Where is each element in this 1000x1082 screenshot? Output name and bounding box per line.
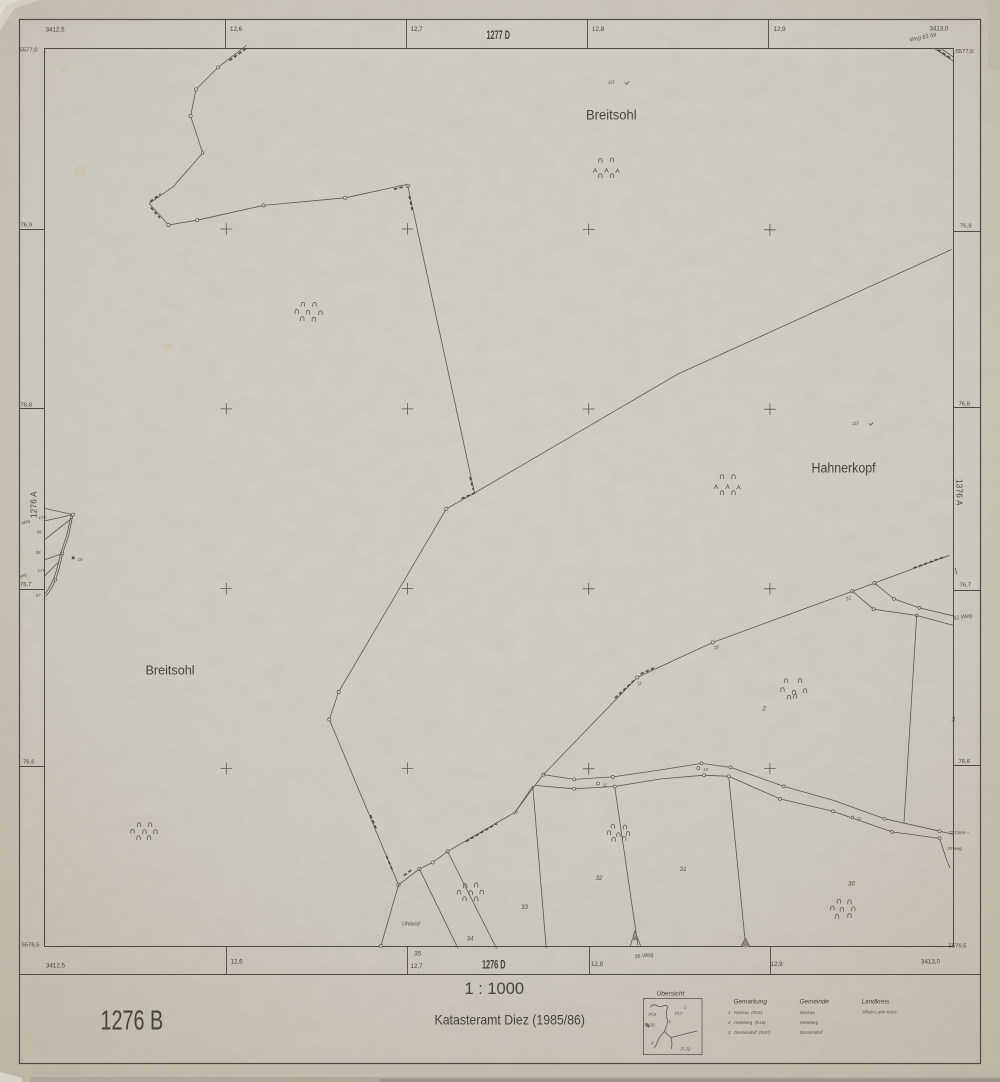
svg-text:76,7: 76,7 <box>960 583 971 589</box>
svg-text:3: 3 <box>952 717 956 724</box>
svg-text:12,6: 12,6 <box>230 26 243 33</box>
svg-text:Breitsohl: Breitsohl <box>146 662 195 677</box>
svg-text:12,7: 12,7 <box>411 963 424 970</box>
svg-text:1376 A: 1376 A <box>955 479 964 506</box>
svg-text:173: 173 <box>39 515 47 520</box>
svg-text:31: 31 <box>680 866 687 873</box>
svg-text:58: 58 <box>36 550 41 555</box>
svg-text:Breitsohl: Breitsohl <box>586 107 637 123</box>
svg-text:5576,5: 5576,5 <box>22 943 41 949</box>
svg-text:57: 57 <box>36 593 41 598</box>
svg-text:Dessendorf: Dessendorf <box>800 1030 823 1035</box>
svg-text:12,9: 12,9 <box>771 961 784 968</box>
svg-text:5577,0: 5577,0 <box>956 49 975 55</box>
svg-text:76,7: 76,7 <box>20 582 31 588</box>
svg-text:112: 112 <box>607 79 615 85</box>
svg-text:10: 10 <box>703 767 708 772</box>
svg-text:Fl.22: Fl.22 <box>681 1047 691 1052</box>
svg-text:2 Hömberg (R16): 2 Hömberg (R16) <box>727 1020 766 1025</box>
svg-text:33: 33 <box>521 904 529 911</box>
svg-text:Fl.7: Fl.7 <box>675 1011 683 1016</box>
svg-text:34: 34 <box>467 936 475 943</box>
svg-text:Uhland: Uhland <box>402 922 421 928</box>
svg-text:3413,0: 3413,0 <box>921 959 940 966</box>
svg-text:1277 D: 1277 D <box>487 29 511 42</box>
svg-text:32: 32 <box>596 875 604 882</box>
svg-text:76,8: 76,8 <box>959 402 971 408</box>
svg-text:Rhein-Lahn-Kreis: Rhein-Lahn-Kreis <box>863 1010 898 1015</box>
svg-text:11: 11 <box>857 816 862 821</box>
svg-text:Katasteramt Diez (1985/86): Katasteramt Diez (1985/86) <box>435 1012 585 1028</box>
svg-text:19: 19 <box>78 557 83 562</box>
svg-text:1276 D: 1276 D <box>482 959 506 972</box>
svg-text:35: 35 <box>414 951 422 958</box>
svg-text:Gemarkung: Gemarkung <box>734 999 768 1006</box>
svg-text:76,8: 76,8 <box>21 403 33 409</box>
svg-text:76,9: 76,9 <box>960 224 971 230</box>
svg-text:Hahnerkopf: Hahnerkopf <box>812 460 876 476</box>
svg-text:76,6: 76,6 <box>23 760 35 766</box>
svg-text:3412,5: 3412,5 <box>46 963 65 970</box>
svg-text:Fl.20: Fl.20 <box>645 1023 655 1028</box>
svg-text:112: 112 <box>851 420 859 426</box>
svg-text:3 Dessendorf (R47): 3 Dessendorf (R47) <box>728 1030 771 1035</box>
svg-text:1 Nassau (R21): 1 Nassau (R21) <box>728 1010 763 1015</box>
svg-text:30: 30 <box>848 881 856 888</box>
svg-text:68: 68 <box>37 530 42 535</box>
svg-text:76,6: 76,6 <box>959 759 971 765</box>
svg-text:Gemeinde: Gemeinde <box>800 999 830 1006</box>
svg-text:11: 11 <box>603 783 608 788</box>
svg-text:1276 A: 1276 A <box>30 491 39 518</box>
svg-text:Übersicht: Übersicht <box>657 990 686 998</box>
svg-text:1 : 1000: 1 : 1000 <box>465 979 525 998</box>
svg-text:2: 2 <box>683 1005 687 1010</box>
svg-text:1276 B: 1276 B <box>101 1005 164 1036</box>
svg-text:12,6: 12,6 <box>231 959 244 966</box>
svg-text:29 weg: 29 weg <box>947 846 963 851</box>
svg-text:Nassau: Nassau <box>800 1010 815 1015</box>
svg-text:12,9: 12,9 <box>774 26 787 33</box>
svg-text:5576,5: 5576,5 <box>949 944 968 950</box>
svg-text:5577,0: 5577,0 <box>20 48 39 54</box>
svg-text:Hömberg: Hömberg <box>800 1020 819 1025</box>
svg-text:2: 2 <box>762 706 767 713</box>
svg-text:3413,0: 3413,0 <box>930 26 949 33</box>
svg-text:177: 177 <box>38 568 46 573</box>
svg-text:12,8: 12,8 <box>592 26 605 33</box>
svg-text:Fl.8: Fl.8 <box>649 1012 657 1017</box>
svg-text:12,8: 12,8 <box>591 961 604 968</box>
svg-text:12,7: 12,7 <box>411 26 424 33</box>
svg-text:3412,5: 3412,5 <box>46 27 65 34</box>
svg-text:Landkreis: Landkreis <box>862 999 891 1006</box>
svg-text:76,9: 76,9 <box>21 223 32 229</box>
